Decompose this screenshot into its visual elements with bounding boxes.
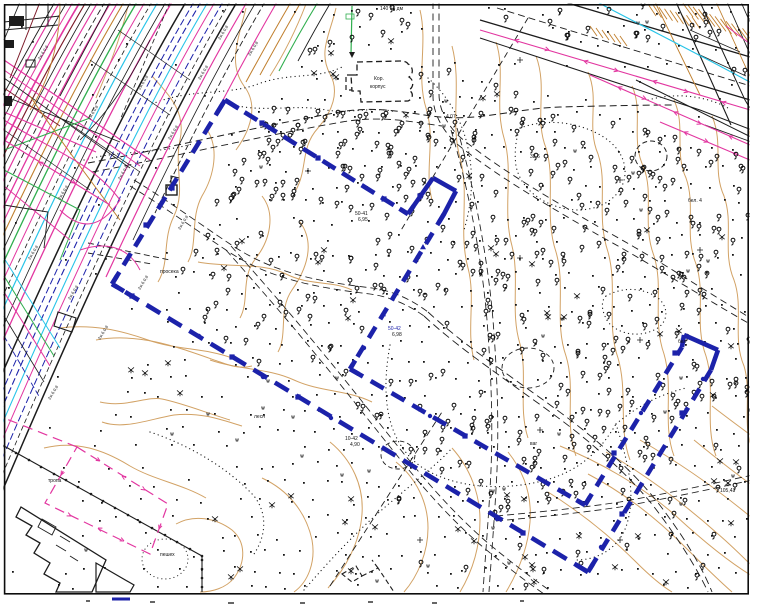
svg-text:4,07: 4,07 [446,114,456,120]
svg-text:ваг: ваг [530,441,537,447]
svg-text:105,43: 105,43 [720,488,736,494]
svg-text:пешех: пешех [160,552,175,558]
svg-text:тропа: тропа [48,478,62,484]
svg-text:6,98: 6,98 [392,332,402,338]
svg-text:просека: просека [160,269,179,275]
svg-text:Кор.: Кор. [374,76,384,82]
svg-text:38,6: 38,6 [530,154,540,160]
svg-text:бел: бел [678,339,686,345]
svg-text:6,95: 6,95 [358,217,368,223]
svg-text:бел. 4: бел. 4 [688,198,702,204]
svg-text:корпус: корпус [370,84,386,90]
svg-text:лесн: лесн [254,414,265,420]
svg-text:140 24 дм: 140 24 дм [380,6,404,12]
svg-text:4,90: 4,90 [350,442,360,448]
